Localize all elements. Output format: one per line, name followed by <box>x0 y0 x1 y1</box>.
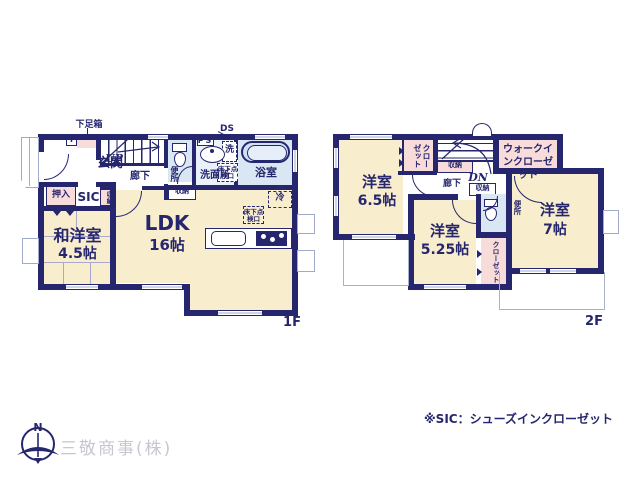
faucet-dot <box>210 149 214 153</box>
label-bedroom-c: 洋室 <box>524 202 586 219</box>
label-closet-b: クローゼット <box>487 240 500 283</box>
label-japanese-western-room: 和洋室 <box>49 227 106 245</box>
label-oshiire: 押入 <box>48 190 74 200</box>
window <box>218 311 262 315</box>
label-hallway-1f: 廊下 <box>126 171 154 182</box>
wall <box>38 182 78 187</box>
wall <box>38 206 116 211</box>
label-floor-1f: 1F <box>277 316 307 331</box>
porch-line <box>29 138 30 186</box>
toilet-bowl-1f <box>172 143 187 152</box>
label-bedroom-b-size: 5.25帖 <box>410 243 480 259</box>
label-stairs-down: DN <box>466 172 490 184</box>
entrance-porch <box>21 137 39 188</box>
wall <box>142 186 168 190</box>
label-hallway-2f: 廊下 <box>437 179 467 189</box>
bay-window <box>297 250 315 272</box>
balcony <box>499 272 605 310</box>
room-ldk <box>190 283 292 310</box>
wall <box>476 232 512 238</box>
window <box>334 196 338 216</box>
floor-plan-canvas: N 下足箱 T 玄関 UP 廊下 便所 PS DS 洗 洗面所 床下点検口 浴室… <box>0 0 640 480</box>
door-arc <box>44 154 69 180</box>
window <box>352 235 396 239</box>
label-ds: DS <box>218 124 236 134</box>
company-name: 三敬商事(株) <box>60 440 210 459</box>
compass-north-label: N <box>33 421 42 434</box>
label-storage-hall-2f: 収納 <box>470 185 495 193</box>
label-underfloor-hatch-b: 床下点検口 <box>243 209 264 224</box>
window <box>142 285 182 289</box>
bay-window <box>22 238 39 264</box>
label-bathroom: 浴室 <box>244 167 288 179</box>
folding-door-mark <box>53 211 61 216</box>
window <box>350 135 392 139</box>
balcony <box>343 240 409 286</box>
label-sic: SIC <box>75 191 102 204</box>
window <box>424 285 466 289</box>
kitchen-sink <box>211 231 246 246</box>
compass-icon: N <box>12 416 64 468</box>
folding-door-mark <box>66 211 74 216</box>
label-closet-a: クローゼット <box>405 142 431 170</box>
label-ldk-size: 16帖 <box>139 237 195 254</box>
label-walk-in-closet: ウォークインクローゼット <box>500 143 556 182</box>
burner-dot <box>261 234 266 239</box>
label-shoe-box: 下足箱 <box>70 120 108 130</box>
folding-door-mark <box>399 147 404 155</box>
burner-dot <box>279 233 284 238</box>
label-fridge: 冷 <box>269 193 291 203</box>
sic-note: ※SIC：シューズインクローゼット <box>398 413 613 426</box>
label-ldk: LDK <box>135 212 199 234</box>
folding-door-mark <box>399 159 404 167</box>
label-washer: 洗 <box>223 145 236 155</box>
label-underfloor-hatch-a: 床下点検口 <box>217 166 238 181</box>
window <box>293 150 297 172</box>
label-ps: PS <box>197 137 214 146</box>
label-bedroom-a: 洋室 <box>348 174 406 191</box>
bay-window <box>297 214 315 234</box>
bathtub <box>241 141 290 163</box>
tatami-line <box>63 262 64 284</box>
bay-window <box>603 210 619 234</box>
label-japanese-western-room-size: 4.5帖 <box>53 247 102 263</box>
window <box>66 285 98 289</box>
label-entrance-t: T <box>66 136 77 145</box>
label-storage-hall-1f: 収納 <box>169 188 195 196</box>
label-stairs-up: UP <box>102 153 126 165</box>
wall <box>557 168 604 174</box>
window <box>255 135 285 139</box>
label-toilet-1f: 便所 <box>168 162 179 186</box>
label-bedroom-a-size: 6.5帖 <box>348 194 406 210</box>
label-floor-2f: 2F <box>579 315 609 330</box>
folding-door-mark <box>477 268 482 276</box>
label-toilet-2f: 便所 <box>511 198 521 216</box>
tatami-line <box>90 262 91 284</box>
window <box>334 148 338 168</box>
label-storage-stairs: 収納 <box>440 162 470 170</box>
burner-dot <box>270 237 275 242</box>
label-bedroom-b: 洋室 <box>412 223 478 240</box>
floor-plan-page: N 下足箱 T 玄関 UP 廊下 便所 PS DS 洗 洗面所 床下点検口 浴室… <box>0 0 640 480</box>
label-bedroom-c-size: 7帖 <box>528 223 582 239</box>
